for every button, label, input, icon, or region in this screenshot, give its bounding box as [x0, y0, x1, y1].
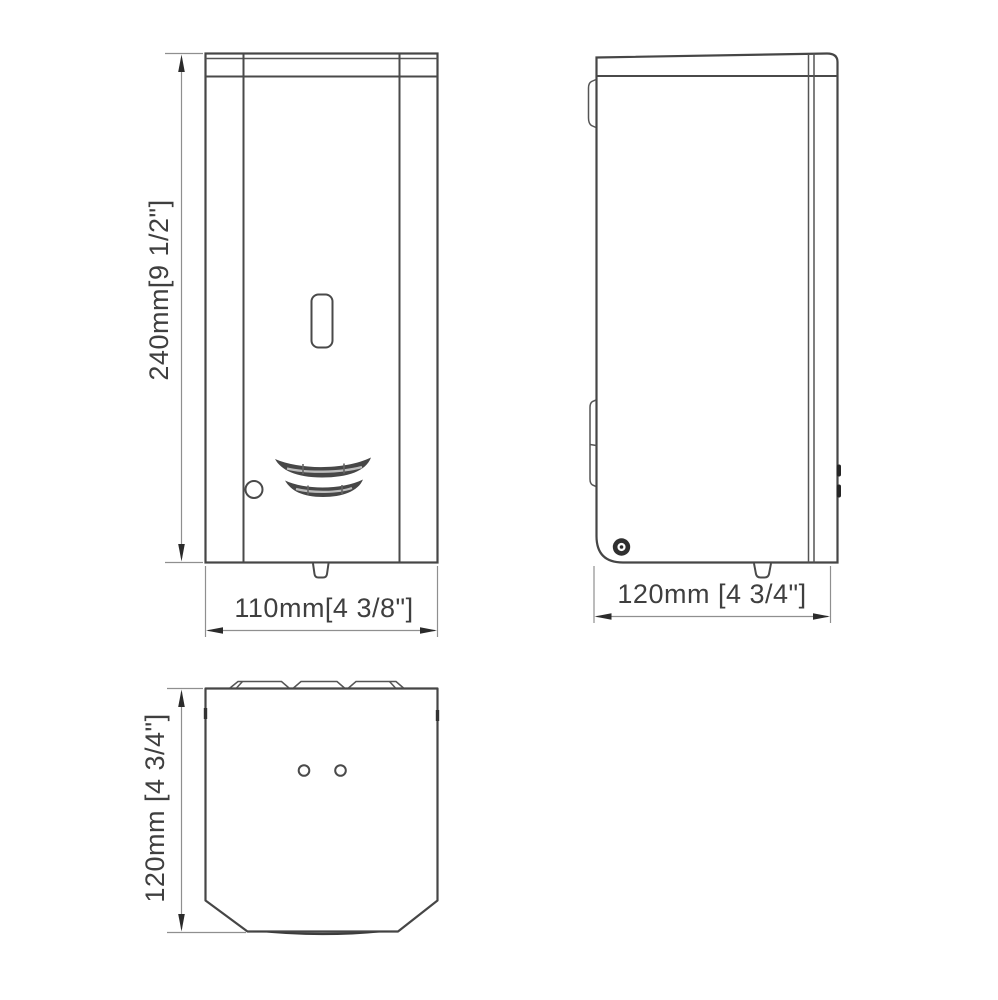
mounting-tab-upper	[589, 80, 597, 128]
technical-drawing-canvas: 240mm[9 1/2"] 110mm[4 3/8"]	[0, 0, 998, 1000]
bottom-hole-left	[299, 765, 310, 776]
side-depth-label: 120mm [4 3/4"]	[617, 579, 806, 609]
bottom-body-outline	[206, 689, 438, 932]
arrowhead-down	[178, 544, 185, 562]
side-view: 120mm [4 3/4"]	[589, 54, 842, 624]
arrowhead-up	[178, 690, 185, 708]
back-mounting-bumps	[230, 682, 404, 689]
mounting-tab-lower	[590, 400, 596, 487]
front-height-dimension: 240mm[9 1/2"]	[144, 54, 203, 563]
arrowhead-left	[595, 613, 612, 619]
arrowhead-right	[813, 613, 830, 619]
side-body-outline	[597, 54, 838, 563]
arrowhead-left	[206, 627, 223, 633]
side-depth-dimension: 120mm [4 3/4"]	[594, 566, 831, 623]
mounting-tab-seam	[590, 445, 597, 446]
sensor-window	[312, 295, 333, 348]
front-width-label: 110mm[4 3/8"]	[234, 593, 413, 623]
front-height-label: 240mm[9 1/2"]	[144, 199, 174, 380]
edge-clip-mark	[837, 465, 841, 477]
arrowhead-right	[420, 627, 437, 633]
arrowhead-down	[178, 914, 185, 932]
bottom-depth-label: 120mm [4 3/4"]	[140, 713, 170, 902]
bottom-hole-right	[335, 765, 346, 776]
bottom-view: 120mm [4 3/4"]	[140, 682, 438, 936]
lock-screw	[613, 538, 630, 555]
side-nozzle	[754, 564, 771, 578]
front-nozzle	[313, 564, 329, 578]
edge-clip-mark	[837, 485, 841, 498]
front-view: 240mm[9 1/2"] 110mm[4 3/8"]	[144, 54, 438, 638]
arrowhead-up	[178, 55, 185, 73]
indicator-light	[246, 481, 263, 498]
